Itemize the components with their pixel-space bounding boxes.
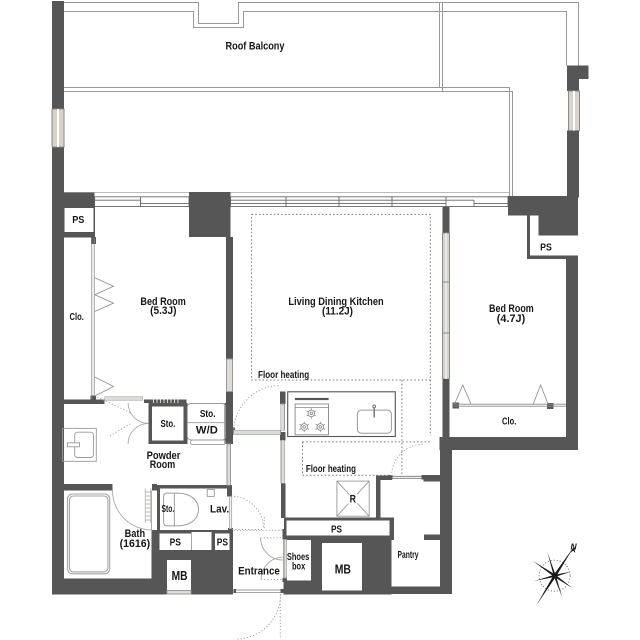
svg-text:(11.2J): (11.2J) <box>322 305 353 317</box>
svg-text:PS: PS <box>170 536 181 548</box>
svg-text:Sto.: Sto. <box>162 504 175 515</box>
svg-text:W/D: W/D <box>196 425 218 437</box>
svg-text:MB: MB <box>335 562 351 577</box>
svg-text:(4.7J): (4.7J) <box>497 313 526 325</box>
svg-text:Entrance: Entrance <box>238 566 280 578</box>
svg-text:Sto.: Sto. <box>161 419 176 430</box>
svg-text:PS: PS <box>217 536 228 548</box>
svg-text:R: R <box>350 494 356 506</box>
svg-text:(1616): (1616) <box>120 538 151 550</box>
svg-text:N: N <box>571 542 578 552</box>
svg-text:Lav.: Lav. <box>210 503 229 515</box>
svg-text:Clo.: Clo. <box>502 416 516 427</box>
svg-text:Clo.: Clo. <box>70 312 85 323</box>
svg-text:MB: MB <box>172 568 188 583</box>
svg-text:PS: PS <box>540 241 552 253</box>
svg-text:Floor heating: Floor heating <box>306 464 356 475</box>
svg-text:PS: PS <box>72 214 84 226</box>
svg-text:(5.3J): (5.3J) <box>150 305 177 317</box>
svg-text:Roof Balcony: Roof Balcony <box>226 41 286 53</box>
svg-text:box: box <box>292 561 305 572</box>
svg-text:PS: PS <box>331 523 342 535</box>
svg-text:Floor heating: Floor heating <box>258 370 309 381</box>
svg-text:Sto.: Sto. <box>200 409 216 420</box>
svg-text:Pantry: Pantry <box>398 550 419 561</box>
svg-text:Room: Room <box>150 459 176 471</box>
